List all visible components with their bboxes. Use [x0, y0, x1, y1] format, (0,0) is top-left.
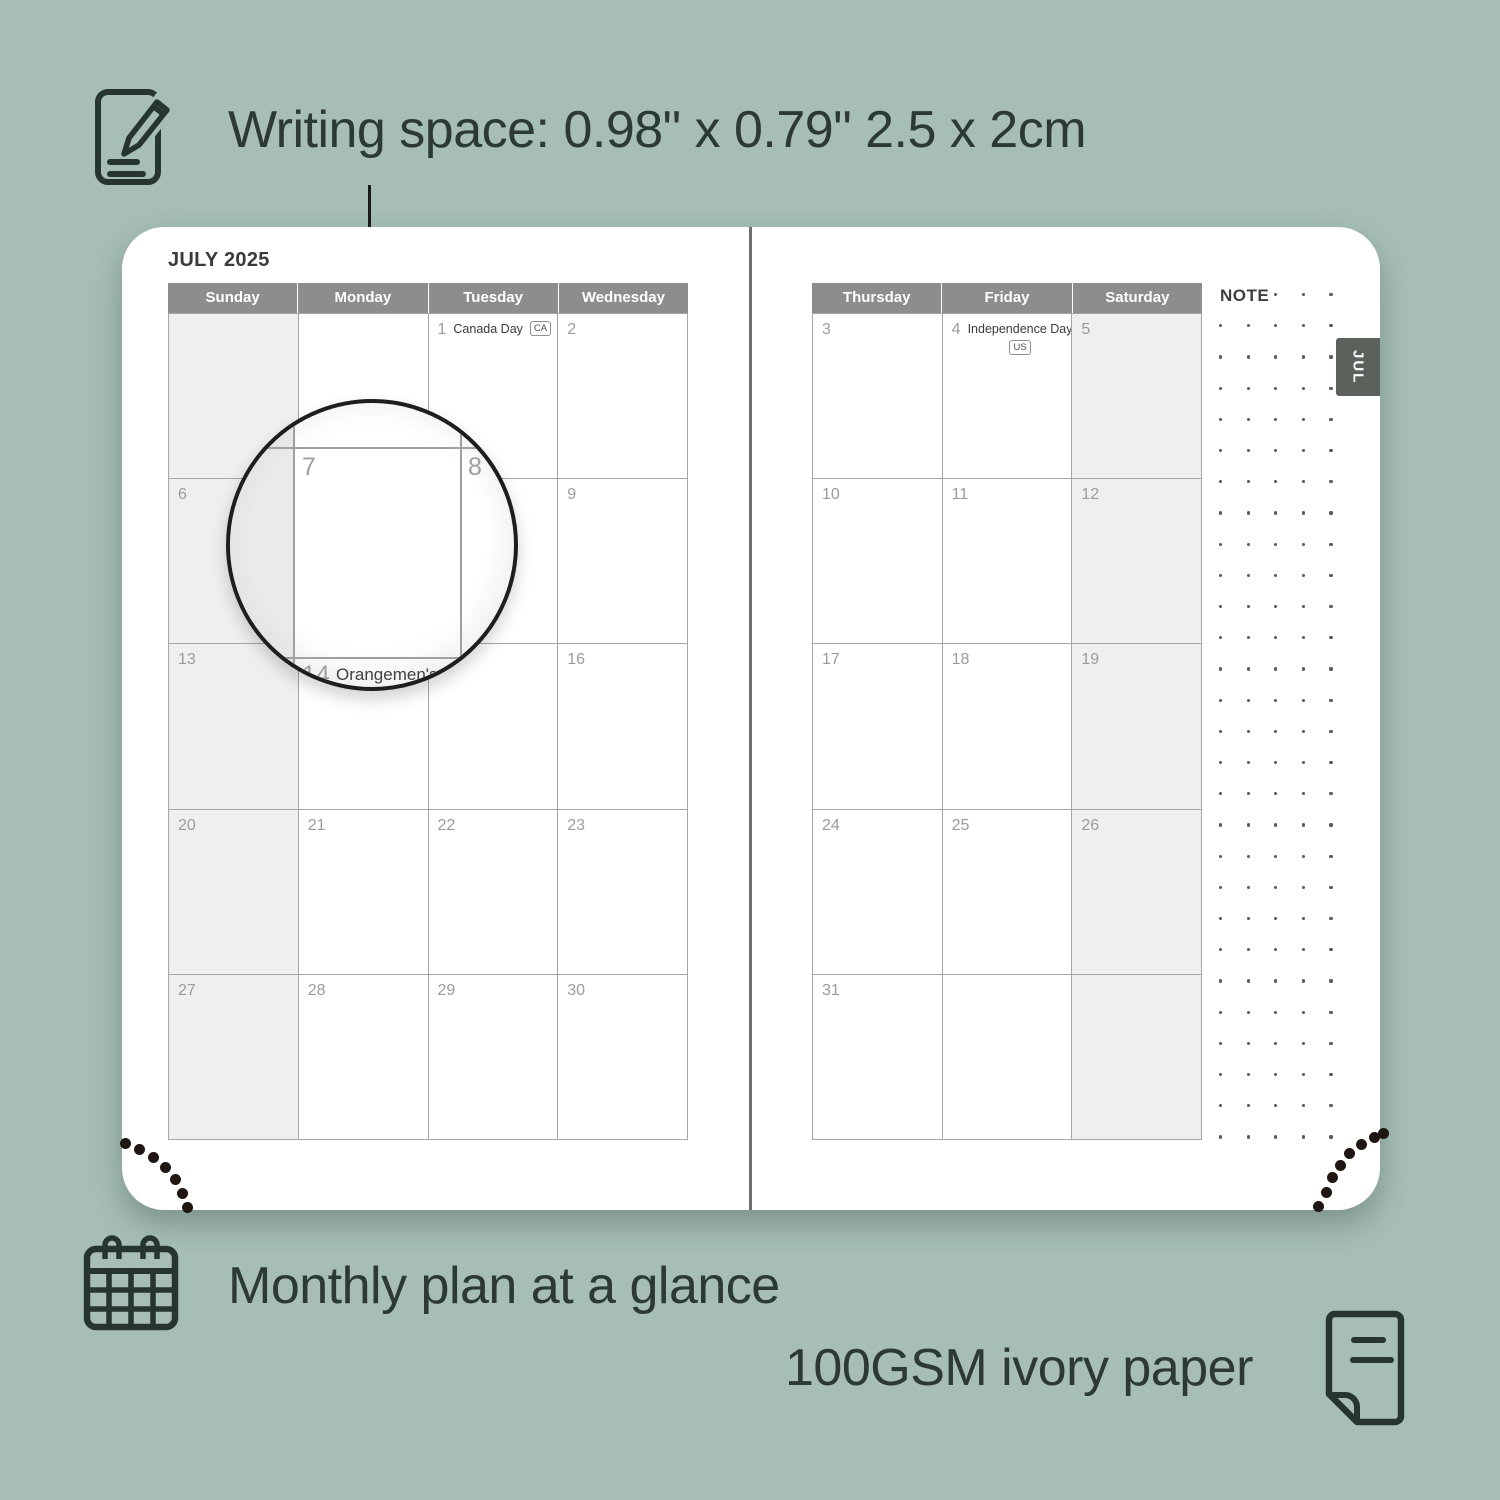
magnified-day-14: 14	[302, 661, 330, 690]
magnified-day-8: 8	[468, 453, 482, 482]
note-dot	[1329, 917, 1332, 920]
calendar-cell: 4Independence DayUS	[943, 314, 1072, 478]
note-dot	[1219, 948, 1222, 951]
magnified-grid-line	[230, 447, 514, 449]
note-dot	[1302, 948, 1305, 951]
note-dot	[1274, 293, 1277, 296]
note-dot	[1329, 480, 1332, 483]
note-dot	[1302, 730, 1305, 733]
note-dot	[1274, 1073, 1277, 1076]
calendar-cell: 21	[299, 810, 428, 974]
note-dot	[1274, 543, 1277, 546]
note-dot	[1274, 636, 1277, 639]
note-dot	[1329, 418, 1332, 421]
stitch-dot	[1344, 1148, 1355, 1159]
day-header-thursday: Thursday	[812, 283, 941, 313]
date-number: 2	[567, 321, 576, 339]
note-dot	[1247, 449, 1250, 452]
note-dot	[1329, 355, 1332, 358]
country-badge: CA	[530, 321, 551, 336]
calendar-icon	[82, 1233, 180, 1333]
magnifier-circle: 7 8 14 Orangemen's D	[226, 399, 518, 691]
note-dot	[1247, 605, 1250, 608]
note-dot	[1219, 636, 1222, 639]
note-dot	[1219, 480, 1222, 483]
note-dot	[1247, 387, 1250, 390]
note-dot	[1219, 1073, 1222, 1076]
note-dot	[1247, 886, 1250, 889]
calendar-cell: 10	[813, 479, 942, 643]
calendar-cell: 9	[558, 479, 687, 643]
calendar-cell: 28	[299, 975, 428, 1139]
note-dot	[1302, 355, 1305, 358]
note-dot	[1247, 418, 1250, 421]
note-dot	[1329, 636, 1332, 639]
note-dot	[1302, 574, 1305, 577]
note-dot	[1329, 293, 1332, 296]
date-number: 4	[952, 321, 961, 339]
note-dot	[1329, 543, 1332, 546]
date-number: 9	[567, 486, 576, 504]
note-dot	[1329, 948, 1332, 951]
calendar-cell: 24	[813, 810, 942, 974]
note-dot	[1274, 324, 1277, 327]
note-dot	[1329, 1011, 1332, 1014]
note-label: NOTE	[1220, 286, 1269, 306]
stitch-dot	[120, 1138, 131, 1149]
stitch-dot	[1378, 1128, 1389, 1139]
stitch-dot	[1356, 1139, 1367, 1150]
note-dot	[1247, 823, 1250, 826]
note-dot	[1329, 1104, 1332, 1107]
writing-space-text: Writing space: 0.98" x 0.79" 2.5 x 2cm	[228, 100, 1086, 160]
calendar-cell: 3	[813, 314, 942, 478]
note-dot	[1329, 1135, 1332, 1138]
note-dot	[1274, 730, 1277, 733]
note-dot	[1247, 574, 1250, 577]
date-number: 28	[308, 982, 326, 1000]
stitch-dot	[1335, 1160, 1346, 1171]
note-dot	[1219, 761, 1222, 764]
note-dot	[1302, 387, 1305, 390]
note-dot	[1247, 667, 1250, 670]
stitch-dot	[148, 1152, 159, 1163]
note-dot	[1274, 480, 1277, 483]
calendar-cell: 25	[943, 810, 1072, 974]
note-dot	[1219, 1042, 1222, 1045]
note-dot	[1302, 823, 1305, 826]
month-title: JULY 2025	[168, 249, 270, 272]
note-dot	[1219, 449, 1222, 452]
note-dot	[1219, 1135, 1222, 1138]
calendar-cell: 19	[1072, 644, 1201, 808]
note-dot	[1329, 387, 1332, 390]
date-number: 20	[178, 817, 196, 835]
date-number: 29	[438, 982, 456, 1000]
note-dot	[1274, 917, 1277, 920]
calendar-cell: 18	[943, 644, 1072, 808]
stitch-dot	[182, 1202, 193, 1213]
note-dot	[1219, 1011, 1222, 1014]
note-dot	[1219, 855, 1222, 858]
date-number: 23	[567, 817, 585, 835]
note-dot	[1274, 355, 1277, 358]
month-tab-label: JUL	[1350, 350, 1367, 384]
note-dot	[1247, 917, 1250, 920]
note-dot	[1302, 1011, 1305, 1014]
note-dot	[1274, 1104, 1277, 1107]
calendar-cell: 17	[813, 644, 942, 808]
note-dot	[1329, 511, 1332, 514]
date-number: 17	[822, 651, 840, 669]
note-dot	[1302, 792, 1305, 795]
calendar-cell: 22	[429, 810, 558, 974]
date-number: 27	[178, 982, 196, 1000]
note-dot	[1329, 979, 1332, 982]
note-dot	[1329, 823, 1332, 826]
month-tab-jul: JUL	[1336, 338, 1380, 396]
calendar-cell: 26	[1072, 810, 1201, 974]
note-dot	[1247, 730, 1250, 733]
magnified-grid-line	[230, 657, 514, 659]
note-dot	[1219, 823, 1222, 826]
note-dot	[1274, 979, 1277, 982]
note-dot	[1302, 511, 1305, 514]
note-dot	[1302, 449, 1305, 452]
note-dot	[1247, 636, 1250, 639]
note-dot	[1219, 730, 1222, 733]
paper-spec-text: 100GSM ivory paper	[785, 1338, 1253, 1398]
note-dot	[1219, 355, 1222, 358]
note-dot	[1329, 605, 1332, 608]
calendar-cell: 16	[558, 644, 687, 808]
calendar-cell: 23	[558, 810, 687, 974]
note-dot	[1302, 293, 1305, 296]
note-dot	[1274, 574, 1277, 577]
stitch-dot	[160, 1162, 171, 1173]
note-dot	[1329, 792, 1332, 795]
note-dot	[1329, 324, 1332, 327]
calendar-cell: 30	[558, 975, 687, 1139]
date-number: 26	[1081, 817, 1099, 835]
note-dot	[1302, 605, 1305, 608]
note-dot	[1329, 574, 1332, 577]
note-dot	[1274, 855, 1277, 858]
date-number: 13	[178, 651, 196, 669]
note-dot	[1274, 886, 1277, 889]
holiday-label: Independence Day	[968, 321, 1072, 338]
writing-note-icon	[93, 84, 175, 188]
calendar-cell: 2	[558, 314, 687, 478]
note-dot	[1247, 480, 1250, 483]
planner-spine	[749, 227, 752, 1210]
note-dot	[1302, 667, 1305, 670]
note-dot	[1274, 823, 1277, 826]
date-number: 31	[822, 982, 840, 1000]
note-dot	[1302, 480, 1305, 483]
note-dot	[1274, 418, 1277, 421]
note-dot	[1247, 543, 1250, 546]
note-dot	[1219, 387, 1222, 390]
note-dot	[1247, 792, 1250, 795]
note-dot	[1274, 1042, 1277, 1045]
note-dot	[1302, 699, 1305, 702]
date-number: 30	[567, 982, 585, 1000]
day-header-saturday: Saturday	[1073, 283, 1202, 313]
date-number: 22	[438, 817, 456, 835]
note-dot	[1219, 543, 1222, 546]
day-header-tuesday: Tuesday	[429, 283, 558, 313]
magnified-day-7: 7	[302, 453, 316, 482]
calendar-right-page: ThursdayFridaySaturday34Independence Day…	[812, 283, 1202, 1140]
note-dot	[1247, 1073, 1250, 1076]
holiday-label: Canada Day	[453, 321, 523, 338]
note-dot	[1329, 855, 1332, 858]
note-dot	[1302, 636, 1305, 639]
date-number: 10	[822, 486, 840, 504]
note-dot	[1247, 1104, 1250, 1107]
calendar-cell	[943, 975, 1072, 1139]
note-dot	[1302, 1104, 1305, 1107]
stitch-dot	[1327, 1172, 1338, 1183]
calendar-cell	[1072, 975, 1201, 1139]
note-dot	[1274, 1011, 1277, 1014]
calendar-cell: 5	[1072, 314, 1201, 478]
note-dot	[1219, 1104, 1222, 1107]
note-dot	[1274, 792, 1277, 795]
note-dot	[1247, 1135, 1250, 1138]
note-dot	[1302, 979, 1305, 982]
magnified-grid-line	[460, 403, 462, 687]
note-dot	[1302, 324, 1305, 327]
day-header-wednesday: Wednesday	[559, 283, 688, 313]
note-dot	[1219, 418, 1222, 421]
note-dot	[1219, 667, 1222, 670]
note-dot	[1274, 449, 1277, 452]
date-number: 16	[567, 651, 585, 669]
note-dot	[1302, 886, 1305, 889]
note-dot	[1302, 1042, 1305, 1045]
note-dot	[1274, 1135, 1277, 1138]
note-dot	[1302, 917, 1305, 920]
note-dot	[1302, 761, 1305, 764]
note-dot	[1247, 979, 1250, 982]
calendar-cell: 11	[943, 479, 1072, 643]
date-number: 19	[1081, 651, 1099, 669]
note-dot	[1329, 699, 1332, 702]
note-dot	[1247, 948, 1250, 951]
day-header-sunday: Sunday	[168, 283, 297, 313]
note-dot	[1329, 761, 1332, 764]
note-dot	[1274, 761, 1277, 764]
note-dot	[1219, 792, 1222, 795]
date-number: 24	[822, 817, 840, 835]
calendar-cell: 12	[1072, 479, 1201, 643]
note-dot	[1247, 511, 1250, 514]
date-number: 12	[1081, 486, 1099, 504]
note-dot	[1219, 511, 1222, 514]
date-number: 3	[822, 321, 831, 339]
note-dot	[1274, 948, 1277, 951]
note-dot	[1274, 605, 1277, 608]
planner-spread: JULY 2025 SundayMondayTuesdayWednesday1C…	[122, 227, 1380, 1210]
note-dot	[1329, 1042, 1332, 1045]
note-dot	[1329, 449, 1332, 452]
note-dot	[1219, 886, 1222, 889]
note-dot	[1329, 1073, 1332, 1076]
date-number: 25	[952, 817, 970, 835]
calendar-cell: 29	[429, 975, 558, 1139]
note-dot	[1247, 855, 1250, 858]
monthly-plan-text: Monthly plan at a glance	[228, 1256, 780, 1316]
country-badge: US	[1009, 340, 1030, 355]
date-number: 6	[178, 486, 187, 504]
calendar-cell: 31	[813, 975, 942, 1139]
paper-icon	[1321, 1310, 1405, 1426]
stitch-dot	[134, 1144, 145, 1155]
date-number: 11	[952, 486, 969, 504]
stitch-dot	[1321, 1187, 1332, 1198]
note-dot	[1219, 605, 1222, 608]
stitch-dot	[1313, 1201, 1324, 1212]
page-background: Writing space: 0.98" x 0.79" 2.5 x 2cm J…	[0, 0, 1500, 1500]
note-dot	[1247, 1011, 1250, 1014]
date-number: 21	[308, 817, 326, 835]
note-dot	[1274, 667, 1277, 670]
stitch-dot	[170, 1174, 181, 1185]
note-dot	[1274, 387, 1277, 390]
day-header-monday: Monday	[298, 283, 427, 313]
note-dot	[1274, 699, 1277, 702]
note-dot	[1247, 761, 1250, 764]
stitch-dot	[177, 1188, 188, 1199]
note-dot	[1274, 511, 1277, 514]
note-dot	[1219, 574, 1222, 577]
note-dot	[1219, 324, 1222, 327]
note-dot	[1219, 917, 1222, 920]
note-dot	[1247, 1042, 1250, 1045]
note-dot	[1302, 855, 1305, 858]
note-dot	[1302, 1135, 1305, 1138]
note-dot	[1329, 886, 1332, 889]
date-number: 1	[438, 321, 447, 339]
note-dot	[1247, 355, 1250, 358]
calendar-cell: 20	[169, 810, 298, 974]
note-dot	[1329, 667, 1332, 670]
note-dot	[1302, 418, 1305, 421]
day-header-friday: Friday	[942, 283, 1071, 313]
note-dot	[1329, 730, 1332, 733]
note-dot	[1219, 979, 1222, 982]
note-dot	[1219, 699, 1222, 702]
magnified-weekend-shade	[230, 403, 293, 687]
note-dot	[1302, 543, 1305, 546]
note-dot	[1302, 1073, 1305, 1076]
date-number: 18	[952, 651, 970, 669]
magnified-grid-line	[293, 403, 295, 687]
calendar-cell: 27	[169, 975, 298, 1139]
note-dot	[1247, 324, 1250, 327]
date-number: 5	[1081, 321, 1090, 339]
magnified-holiday-text: Orangemen's D	[336, 665, 455, 685]
note-dot	[1247, 699, 1250, 702]
